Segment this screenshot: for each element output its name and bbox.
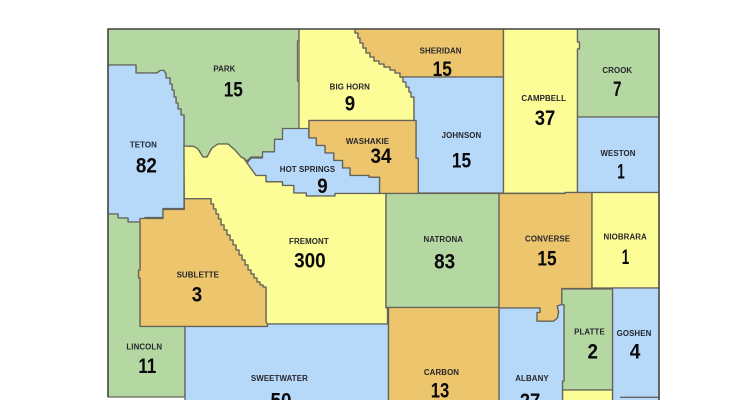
svg-text:15: 15 (452, 150, 471, 173)
svg-text:CROOK: CROOK (602, 66, 632, 75)
svg-text:TETON: TETON (130, 140, 157, 149)
svg-text:11: 11 (138, 355, 156, 378)
svg-text:NIOBRARA: NIOBRARA (604, 233, 648, 242)
svg-text:CARBON: CARBON (424, 368, 459, 377)
svg-text:9: 9 (345, 93, 355, 116)
svg-text:13: 13 (431, 380, 450, 400)
svg-text:1: 1 (617, 161, 625, 184)
svg-text:300: 300 (294, 250, 326, 273)
svg-text:50: 50 (271, 390, 292, 400)
svg-text:JOHNSON: JOHNSON (442, 131, 482, 140)
svg-text:15: 15 (433, 58, 452, 81)
svg-text:GOSHEN: GOSHEN (617, 329, 652, 338)
svg-text:15: 15 (537, 247, 556, 270)
svg-text:9: 9 (317, 175, 327, 198)
svg-text:HOT SPRINGS: HOT SPRINGS (280, 165, 335, 174)
svg-text:37: 37 (535, 107, 556, 130)
svg-text:BIG HORN: BIG HORN (330, 82, 370, 91)
svg-text:SUBLETTE: SUBLETTE (177, 271, 219, 280)
svg-text:WESTON: WESTON (600, 149, 635, 158)
svg-text:27: 27 (520, 390, 541, 400)
svg-text:1: 1 (622, 246, 630, 269)
svg-text:SHERIDAN: SHERIDAN (420, 46, 462, 55)
svg-text:4: 4 (630, 341, 641, 364)
svg-text:PARK: PARK (213, 64, 235, 73)
svg-text:ALBANY: ALBANY (515, 374, 549, 383)
svg-text:15: 15 (224, 79, 243, 102)
svg-text:FREMONT: FREMONT (289, 237, 329, 246)
svg-text:82: 82 (136, 155, 157, 178)
svg-text:PLATTE: PLATTE (574, 327, 605, 336)
svg-text:2: 2 (588, 341, 598, 364)
svg-text:NATRONA: NATRONA (424, 235, 464, 244)
svg-text:34: 34 (371, 145, 392, 168)
svg-text:3: 3 (192, 284, 202, 307)
svg-text:7: 7 (613, 78, 622, 101)
svg-text:LINCOLN: LINCOLN (126, 342, 162, 351)
svg-text:SWEETWATER: SWEETWATER (251, 374, 308, 383)
svg-text:CAMPBELL: CAMPBELL (521, 94, 566, 103)
svg-text:CONVERSE: CONVERSE (525, 234, 570, 243)
svg-text:83: 83 (434, 251, 455, 274)
